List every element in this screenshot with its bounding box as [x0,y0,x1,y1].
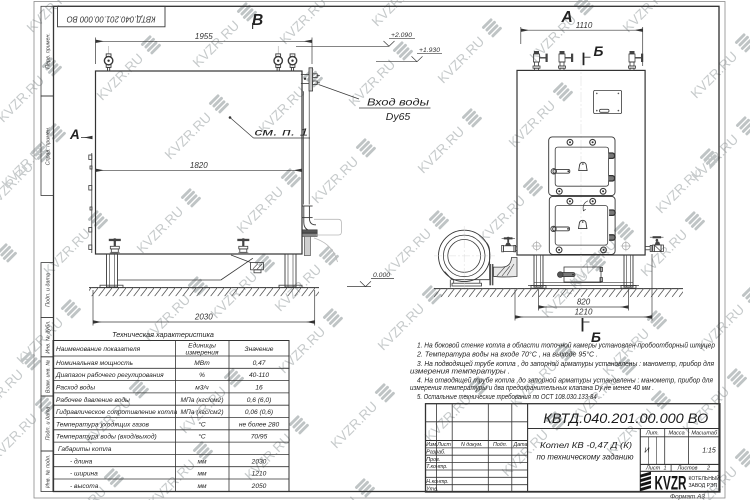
svg-text:KVZR.RU: KVZR.RU [308,494,361,500]
svg-text:1. На боковой стенке котла в: 1. На боковой стенке котла в области топ… [417,340,715,349]
svg-text:Лист: Лист [645,466,661,472]
svg-text:2. Температура воды на входе: 2. Температура воды на входе 70°С , на в… [416,349,598,358]
svg-text:KVZR.RU: KVZR.RU [309,154,362,207]
svg-text:KVZR.RU: KVZR.RU [369,0,422,29]
svg-text:KVZR.RU: KVZR.RU [653,164,706,217]
svg-text:Инв. № подл.: Инв. № подл. [46,455,52,488]
svg-text:измерения: измерения [186,350,219,357]
svg-text:°С: °С [198,420,206,428]
svg-text:KVZR.RU: KVZR.RU [41,226,94,279]
svg-text:Листов: Листов [677,466,698,472]
svg-text:КВТД.040.201.00.000 ВО: КВТД.040.201.00.000 ВО [67,15,156,24]
svg-text:А: А [69,127,80,142]
svg-text:Перв. примен.: Перв. примен. [46,33,52,69]
svg-text:1: 1 [664,466,667,472]
svg-text:5. Остальные технические треб: 5. Остальные технические требования по О… [417,392,600,401]
svg-text:измерения температуры и два пр: измерения температуры и два предохраните… [410,383,654,392]
svg-text:Единицы: Единицы [188,342,216,350]
svg-text:Техническая характеристика: Техническая характеристика [112,330,214,339]
svg-text:мм: мм [197,471,207,478]
svg-text:+1.930: +1.930 [419,47,440,54]
svg-text:ЗАВОД РЭП: ЗАВОД РЭП [689,483,718,489]
svg-text:Рабочее давление воды: Рабочее давление воды [56,396,130,404]
svg-text:Масштаб: Масштаб [691,431,718,437]
svg-text:Т.контр.: Т.контр. [426,464,447,470]
svg-text:Значение: Значение [245,346,274,353]
svg-text:1110: 1110 [576,21,593,30]
svg-text:KVZR.RU: KVZR.RU [242,431,295,484]
svg-text:KVZR.RU: KVZR.RU [688,49,741,102]
svg-text:KVZR.RU: KVZR.RU [0,159,36,212]
svg-text:%: % [199,372,205,379]
svg-text:Формат А3: Формат А3 [670,493,705,500]
svg-text:И: И [644,448,650,455]
svg-text:Масса: Масса [668,431,684,437]
svg-text:Лист: Лист [436,442,451,448]
svg-text:16: 16 [255,385,263,392]
svg-text:°С: °С [198,433,206,441]
svg-text:Инв. № дубл.: Инв. № дубл. [46,320,52,353]
svg-text:1820: 1820 [190,161,208,170]
svg-text:Взам. инв. №: Взам. инв. № [46,360,52,394]
svg-text:1210: 1210 [575,307,593,316]
svg-text:KVZR.RU: KVZR.RU [0,73,47,126]
svg-text:KVZR.RU: KVZR.RU [190,18,243,71]
svg-text:KVZR.RU: KVZR.RU [382,226,435,279]
svg-text:0,6 (6,0): 0,6 (6,0) [247,397,272,404]
svg-text:Лит.: Лит. [645,431,659,437]
svg-text:820: 820 [577,297,591,306]
svg-text:Номинальная мощность: Номинальная мощность [56,360,134,367]
svg-text:не более 280: не более 280 [239,420,280,428]
svg-text:Dy65: Dy65 [386,111,411,123]
svg-text:мм: мм [197,483,207,490]
svg-text:по техническому заданию: по техническому заданию [537,453,634,462]
svg-text:1955: 1955 [195,32,213,41]
svg-text:Диапазон рабочего регулировани: Диапазон рабочего регулирования [55,371,164,379]
svg-text:Наименование показателя: Наименование показателя [56,346,141,353]
svg-text:N докум.: N докум. [461,442,482,448]
svg-text:мм: мм [197,458,207,465]
svg-text:Справ. примен.: Справ. примен. [46,127,52,166]
svg-text:измерения температуры .: измерения температуры . [410,367,510,376]
svg-text:см. п. 1: см. п. 1 [255,127,309,139]
svg-text:КОТЕЛЬНЫЙ: КОТЕЛЬНЫЙ [689,474,721,482]
svg-text:70/95: 70/95 [251,434,268,441]
svg-text:KVZR.RU: KVZR.RU [435,34,488,87]
svg-text:KVZR.RU: KVZR.RU [328,399,381,452]
svg-text:KVZR.RU: KVZR.RU [0,367,26,420]
svg-text:KVZR.RU: KVZR.RU [277,0,330,47]
svg-text:МПа (кгс/см2): МПа (кгс/см2) [180,409,223,416]
svg-text:KVZR.RU: KVZR.RU [506,98,559,151]
svg-text:KVZR: KVZR [655,474,687,495]
svg-text:- высота: - высота [70,483,99,490]
svg-text:Температура уходящих газов: Температура уходящих газов [56,420,149,428]
svg-text:Подп. и дата: Подп. и дата [46,407,52,441]
svg-text:2030: 2030 [194,312,213,321]
svg-text:Подп. и дата: Подп. и дата [46,273,52,307]
svg-text:2050: 2050 [251,483,267,490]
svg-text:KVZR.RU: KVZR.RU [94,51,147,104]
svg-text:Подп.: Подп. [493,442,507,448]
svg-text:Б: Б [594,43,604,59]
svg-text:2030: 2030 [251,458,267,465]
svg-text:МПа (кгс/см2): МПа (кгс/см2) [180,397,223,404]
svg-text:40-110: 40-110 [249,372,269,379]
svg-text:Вход воды: Вход воды [367,97,429,109]
svg-text:Гидравлическое сопротивление к: Гидравлическое сопротивление котла [56,408,177,416]
svg-text:МВт: МВт [194,360,210,367]
svg-text:Дата: Дата [513,442,528,448]
svg-text:1:15: 1:15 [702,448,716,455]
svg-text:KVZR.RU: KVZR.RU [476,193,529,246]
svg-text:Изм.: Изм. [426,442,437,448]
svg-text:Габариты котла: Габариты котла [58,445,112,453]
svg-text:Утв.: Утв. [426,486,438,492]
svg-text:Разраб.: Разраб. [426,450,445,456]
svg-text:Котел КВ -0,47 Д (К): Котел КВ -0,47 Д (К) [540,441,632,450]
svg-text:Расход воды: Расход воды [56,384,95,392]
svg-text:- ширина: - ширина [70,471,98,478]
svg-text:Н.контр.: Н.контр. [426,479,448,485]
svg-text:2: 2 [706,466,710,472]
svg-text:А: А [561,9,573,26]
svg-text:KVZR.RU: KVZR.RU [0,259,2,312]
svg-text:0.000: 0.000 [373,272,390,279]
svg-text:0,47: 0,47 [253,360,266,367]
svg-text:1210: 1210 [252,471,267,478]
svg-text:КВТД.040.201.00.000 ВО: КВТД.040.201.00.000 ВО [543,410,708,426]
svg-text:+2.090: +2.090 [391,32,412,39]
svg-text:0,06 (0,6): 0,06 (0,6) [245,409,273,416]
svg-text:KVZR.RU: KVZR.RU [134,204,187,257]
svg-text:- длина: - длина [70,457,93,465]
svg-text:KVZR.RU: KVZR.RU [234,184,287,237]
svg-text:KVZR.RU: KVZR.RU [162,110,215,163]
svg-text:Пров.: Пров. [426,457,440,463]
svg-text:KVZR.RU: KVZR.RU [146,457,199,500]
svg-text:KVZR.RU: KVZR.RU [415,124,468,177]
svg-text:м3/ч: м3/ч [195,385,209,392]
svg-text:В: В [252,12,263,29]
svg-text:Температура воды (вход/выход): Температура воды (вход/выход) [56,433,157,441]
